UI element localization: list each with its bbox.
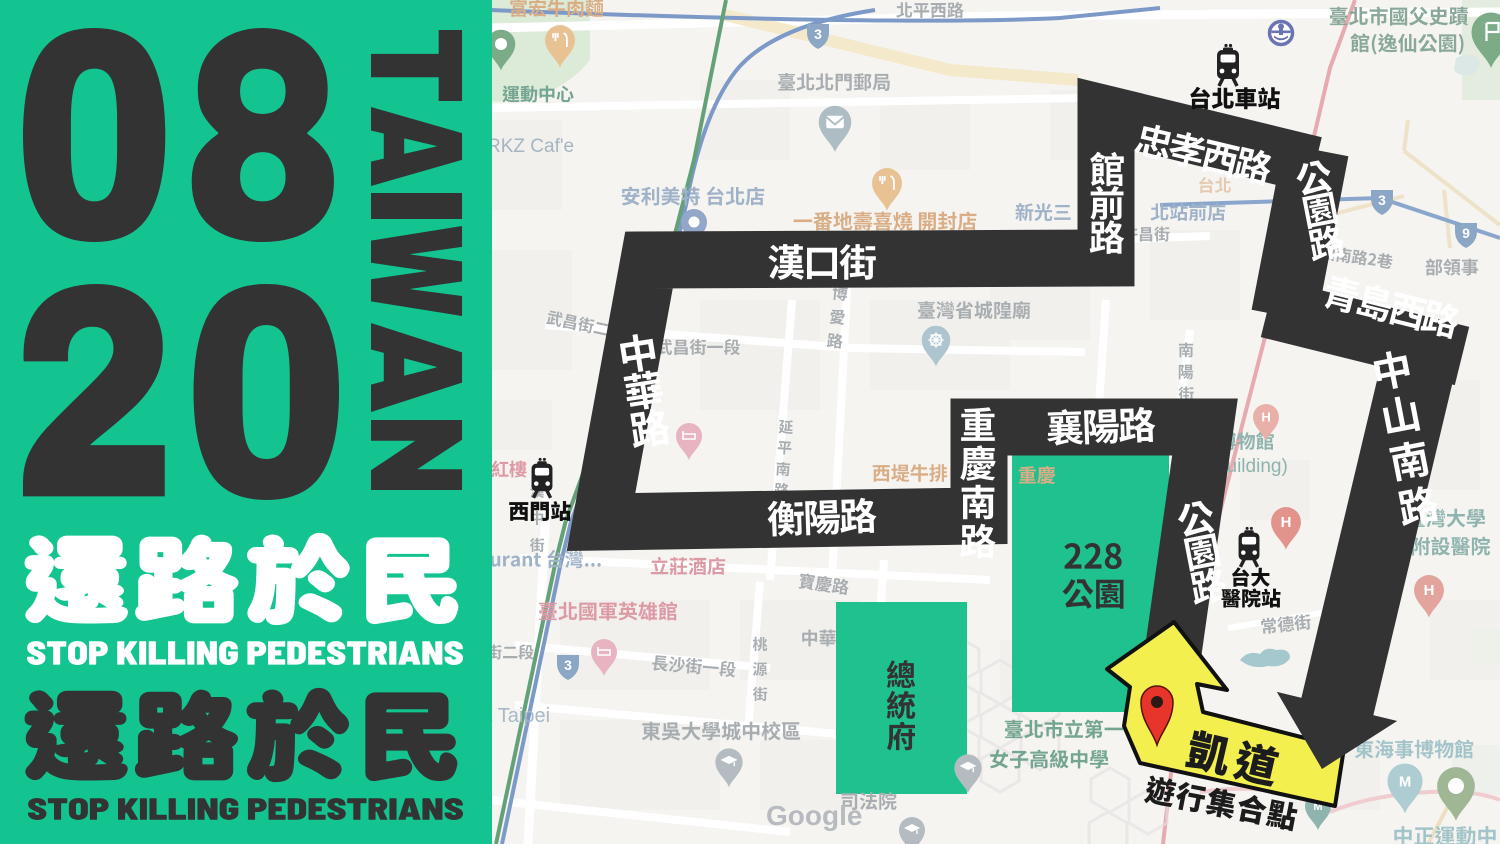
svg-text:H: H [1424,582,1435,599]
svg-text:H: H [1281,514,1292,531]
svg-text:3: 3 [1378,192,1386,208]
svg-text:9: 9 [1462,225,1470,241]
svg-text:3: 3 [564,657,572,673]
svg-text:RKZ Caf'e: RKZ Caf'e [487,136,574,157]
svg-text:Google: Google [766,800,862,831]
svg-text:H: H [1261,410,1270,425]
svg-text:t Taipei: t Taipei [487,705,550,727]
svg-text:M: M [1399,774,1411,790]
svg-text:3: 3 [814,26,822,42]
